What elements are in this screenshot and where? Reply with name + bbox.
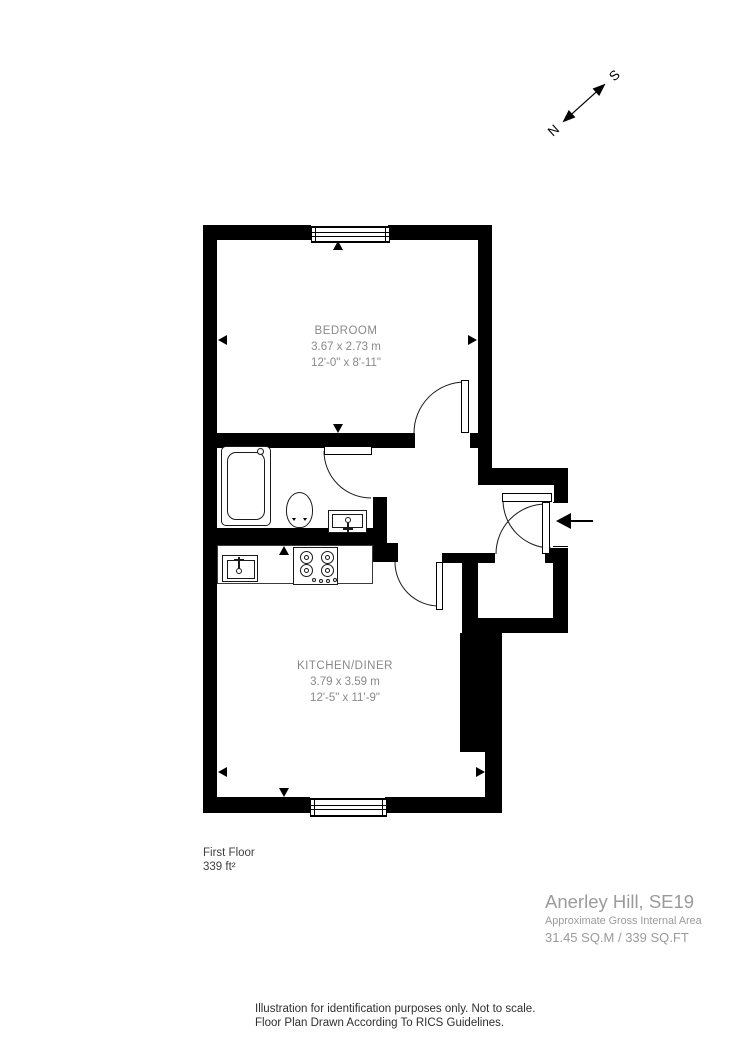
wall-kitchen-right	[485, 752, 502, 797]
hob-knob	[312, 578, 316, 582]
wall-bottom-right	[385, 797, 502, 813]
floor-label: First Floor 339 ft²	[203, 846, 255, 874]
bedroom-dims-metric: 3.67 x 2.73 m	[256, 339, 436, 355]
window-pane-line	[312, 232, 389, 233]
hob-knob	[319, 579, 323, 583]
bedroom-name: BEDROOM	[256, 323, 436, 339]
kitchen-sink	[222, 555, 258, 582]
dim-arrow-bedroom-top	[333, 241, 343, 250]
disclaimer-line1: Illustration for identification purposes…	[255, 1002, 535, 1016]
dim-arrow-bedroom-right	[468, 335, 477, 345]
hob-burner	[321, 564, 334, 577]
entry-frame-bottom	[553, 546, 568, 547]
compass-south-arrowhead	[593, 80, 609, 96]
floor-area: 339 ft²	[203, 860, 255, 874]
compass-south-label: S	[606, 67, 623, 84]
window-pane-line	[312, 236, 389, 237]
wall-closet-bottom	[462, 618, 568, 633]
compass-north-label: N	[545, 122, 562, 140]
dim-arrow-kitchen-bottom	[279, 788, 289, 797]
toilet-mark	[303, 518, 307, 521]
closet-door-leaf	[542, 502, 550, 554]
property-address: Anerley Hill, SE19	[545, 891, 702, 912]
compass: N S	[545, 67, 623, 139]
bathroom-door-leaf	[324, 446, 372, 455]
dim-arrow-kitchen-right	[476, 767, 485, 777]
compass-north-arrowhead	[559, 110, 575, 126]
toilet	[286, 492, 313, 528]
kitchen-diner-label: KITCHEN/DINER 3.79 x 3.59 m 12'-5" x 11'…	[255, 658, 435, 706]
hob-burner-dot	[325, 555, 330, 560]
kitchen-sink-plug	[236, 568, 242, 574]
bedroom-door-leaf	[461, 380, 469, 433]
hob-burner-dot	[325, 568, 330, 573]
disclaimer: Illustration for identification purposes…	[255, 1002, 535, 1030]
hob-burner-dot	[304, 555, 309, 560]
bedroom-door-arc	[414, 382, 465, 433]
entry-arrow-line	[571, 520, 593, 522]
disclaimer-line2: Floor Plan Drawn According To RICS Guide…	[255, 1016, 535, 1030]
compass-line	[564, 85, 604, 121]
hob-burner	[321, 551, 334, 564]
bathroom-door-arc	[324, 451, 371, 498]
wall-service-block	[460, 633, 502, 752]
kitchen-door-arc	[395, 562, 439, 606]
wall-closet-left	[462, 553, 478, 618]
wall-bedroom-bottom-right	[470, 433, 492, 448]
dim-arrow-kitchen-left	[218, 767, 227, 777]
wall-left	[203, 225, 217, 813]
wall-hall-top	[478, 468, 568, 485]
wall-bedroom-right	[478, 225, 492, 468]
window-end-line	[385, 228, 386, 241]
dim-arrow-bedroom-left	[218, 335, 227, 345]
entry-door-leaf	[502, 493, 552, 502]
wall-top-left	[203, 225, 311, 240]
bathroom-sink-tap-bar	[343, 528, 353, 530]
total-area: 31.45 SQ.M / 339 SQ.FT	[545, 930, 702, 946]
wall-bathroom-corner-block	[373, 543, 398, 562]
wall-bottom-left	[203, 797, 310, 813]
hob	[293, 547, 338, 585]
kitchen-diner-name: KITCHEN/DINER	[255, 658, 435, 674]
window-pane-line	[311, 805, 386, 806]
hob-knob	[326, 579, 330, 583]
dim-arrow-kitchen-top	[279, 546, 289, 555]
kitchen-door-leaf	[436, 562, 443, 610]
bathtub-inner	[227, 452, 265, 520]
wall-entry-top-jamb	[554, 485, 568, 502]
kitchen-diner-dims-metric: 3.79 x 3.59 m	[255, 674, 435, 690]
title-subtitle: Approximate Gross Internal Area	[545, 915, 702, 928]
kitchen-diner-dims-imperial: 12'-5" x 11'-9"	[255, 690, 435, 706]
toilet-mark	[292, 518, 296, 521]
hob-burner-dot	[304, 568, 309, 573]
wall-top-right	[388, 225, 492, 240]
closet-door-arc	[496, 504, 546, 554]
bathroom-sink	[328, 510, 367, 533]
entry-arrow-icon	[556, 513, 571, 529]
entry-frame-top	[553, 502, 568, 503]
kitchen-window	[310, 798, 387, 817]
hob-burner	[300, 551, 313, 564]
bedroom-label: BEDROOM 3.67 x 2.73 m 12'-0" x 8'-11"	[256, 323, 436, 371]
kitchen-sink-tap-bar	[234, 559, 244, 561]
hob-knob	[333, 578, 337, 582]
dim-arrow-bedroom-bottom	[333, 424, 343, 433]
floorplan-page: N S	[0, 0, 742, 1050]
bathtub-drain	[257, 448, 264, 455]
window-end-line	[382, 800, 383, 815]
bedroom-dims-imperial: 12'-0" x 8'-11"	[256, 355, 436, 371]
window-pane-line	[311, 809, 386, 810]
hob-burner	[300, 564, 313, 577]
bedroom-window	[311, 226, 390, 243]
floor-name: First Floor	[203, 846, 255, 860]
window-end-line	[314, 800, 315, 815]
window-end-line	[315, 228, 316, 241]
title-block: Anerley Hill, SE19 Approximate Gross Int…	[545, 891, 702, 946]
